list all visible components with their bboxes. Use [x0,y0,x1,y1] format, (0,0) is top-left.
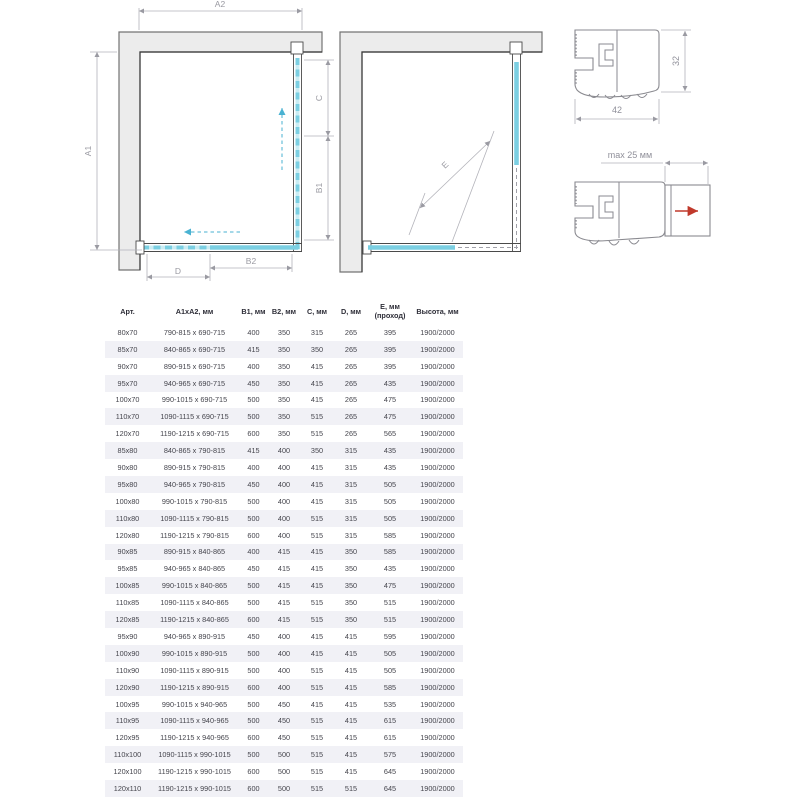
table-cell: 500 [239,662,268,679]
table-cell: 415 [268,560,300,577]
spec-table-head: Арт.A1xA2, ммB1, ммB2, ммC, ммD, ммE, мм… [105,299,463,324]
table-cell: 400 [239,459,268,476]
wall-profile-cap-top [291,42,303,54]
dimension-label-b1: B1 [314,183,324,194]
table-cell: 990-1015 x 840-865 [150,577,239,594]
table-cell: 95x90 [105,628,150,645]
table-cell: 315 [334,442,368,459]
table-cell: 90x85 [105,544,150,561]
table-row: 95x70940-965 x 690-715450350415265435190… [105,375,463,392]
table-cell: 400 [268,476,300,493]
table-cell: 400 [268,459,300,476]
table-cell: 395 [368,324,412,341]
table-cell: 100x80 [105,493,150,510]
table-cell: 1900/2000 [412,729,463,746]
table-cell: 1090-1115 x 940-965 [150,712,239,729]
table-cell: 1900/2000 [412,408,463,425]
table-cell: 1900/2000 [412,577,463,594]
table-cell: 100x70 [105,392,150,409]
dimension-label-42: 42 [612,105,622,115]
table-cell: 990-1015 x 790-815 [150,493,239,510]
column-header: D, мм [334,299,368,324]
table-cell: 940-965 x 840-865 [150,560,239,577]
table-cell: 1190-1215 x 990-1015 [150,763,239,780]
table-cell: 1900/2000 [412,662,463,679]
table-cell: 350 [268,425,300,442]
table-cell: 1900/2000 [412,560,463,577]
table-cell: 415 [334,679,368,696]
table-cell: 790-815 x 690-715 [150,324,239,341]
table-cell: 500 [239,577,268,594]
table-cell: 615 [368,729,412,746]
table-cell: 400 [239,324,268,341]
table-cell: 1190-1215 x 940-965 [150,729,239,746]
table-cell: 450 [268,696,300,713]
table-cell: 395 [368,341,412,358]
table-cell: 350 [334,577,368,594]
table-cell: 350 [268,324,300,341]
table-cell: 450 [268,729,300,746]
table-row: 90x80890-915 x 790-815400400415315435190… [105,459,463,476]
table-cell: 400 [268,628,300,645]
table-cell: 1900/2000 [412,493,463,510]
table-cell: 1900/2000 [412,696,463,713]
table-cell: 1900/2000 [412,425,463,442]
table-cell: 265 [334,341,368,358]
table-cell: 1190-1215 x 840-865 [150,611,239,628]
table-cell: 515 [300,594,334,611]
table-cell: 120x70 [105,425,150,442]
table-cell: 515 [300,679,334,696]
table-cell: 500 [239,712,268,729]
table-cell: 500 [268,746,300,763]
column-header: Арт. [105,299,150,324]
table-cell: 415 [300,544,334,561]
table-cell: 500 [239,392,268,409]
table-cell: 350 [268,392,300,409]
table-row: 120x1001190-1215 x 990-10156005005154156… [105,763,463,780]
table-cell: 400 [268,493,300,510]
table-cell: 1900/2000 [412,645,463,662]
table-cell: 350 [334,544,368,561]
dimension-label-32: 32 [671,56,681,66]
table-cell: 515 [300,408,334,425]
table-row: 90x85890-915 x 840-865400415415350585190… [105,544,463,561]
table-cell: 535 [368,696,412,713]
table-cell: 435 [368,459,412,476]
table-cell: 585 [368,527,412,544]
table-row: 100x90990-1015 x 890-9155004004154155051… [105,645,463,662]
table-cell: 515 [368,611,412,628]
table-cell: 1900/2000 [412,476,463,493]
spec-table-container: Арт.A1xA2, ммB1, ммB2, ммC, ммD, ммE, мм… [105,299,447,797]
table-cell: 1900/2000 [412,527,463,544]
table-cell: 1090-1115 x 690-715 [150,408,239,425]
table-cell: 265 [334,324,368,341]
extension-profile-section: max 25 мм [575,150,710,245]
table-cell: 475 [368,577,412,594]
table-cell: 990-1015 x 690-715 [150,392,239,409]
table-cell: 415 [334,729,368,746]
table-cell: 515 [300,763,334,780]
table-cell: 315 [334,527,368,544]
table-cell: 500 [239,408,268,425]
table-cell: 415 [300,645,334,662]
table-cell: 85x70 [105,341,150,358]
table-cell: 1900/2000 [412,594,463,611]
table-row: 110x701090-1115 x 690-715500350515265475… [105,408,463,425]
table-cell: 990-1015 x 940-965 [150,696,239,713]
table-cell: 80x70 [105,324,150,341]
table-cell: 1090-1115 x 890-915 [150,662,239,679]
table-row: 120x801190-1215 x 790-815600400515315585… [105,527,463,544]
table-cell: 565 [368,425,412,442]
table-cell: 1900/2000 [412,392,463,409]
table-row: 110x951090-1115 x 940-965500450515415615… [105,712,463,729]
column-header: E, мм (проход) [368,299,412,324]
table-cell: 110x80 [105,510,150,527]
table-cell: 315 [300,324,334,341]
table-row: 100x95990-1015 x 940-9655004504154155351… [105,696,463,713]
table-cell: 600 [239,527,268,544]
table-cell: 515 [300,527,334,544]
table-row: 85x70840-865 x 690-715415350350265395190… [105,341,463,358]
table-cell: 400 [268,662,300,679]
table-cell: 350 [334,611,368,628]
table-cell: 1190-1215 x 790-815 [150,527,239,544]
table-cell: 315 [334,493,368,510]
table-cell: 1900/2000 [412,628,463,645]
table-row: 100x85990-1015 x 840-8655004154153504751… [105,577,463,594]
table-cell: 1900/2000 [412,375,463,392]
table-cell: 110x95 [105,712,150,729]
table-cell: 350 [268,375,300,392]
table-cell: 415 [334,696,368,713]
table-cell: 415 [300,577,334,594]
dim-line-e [420,141,490,208]
wall-profile-cap-top [510,42,522,54]
wall-l-shape [119,32,322,270]
table-cell: 500 [239,696,268,713]
table-cell: 600 [239,611,268,628]
table-cell: 1900/2000 [412,358,463,375]
column-header: C, мм [300,299,334,324]
table-cell: 265 [334,375,368,392]
table-cell: 1900/2000 [412,712,463,729]
table-cell: 940-965 x 790-815 [150,476,239,493]
table-row: 120x701190-1215 x 690-715600350515265565… [105,425,463,442]
table-cell: 100x95 [105,696,150,713]
table-cell: 475 [368,408,412,425]
table-cell: 100x85 [105,577,150,594]
table-cell: 415 [334,662,368,679]
table-cell: 315 [334,510,368,527]
table-cell: 505 [368,510,412,527]
table-cell: 840-865 x 690-715 [150,341,239,358]
table-cell: 415 [300,560,334,577]
table-cell: 515 [300,510,334,527]
table-row: 120x901190-1215 x 890-915600400515415585… [105,679,463,696]
table-cell: 400 [239,358,268,375]
table-cell: 515 [334,780,368,797]
table-cell: 890-915 x 690-715 [150,358,239,375]
table-cell: 415 [300,459,334,476]
table-cell: 350 [334,594,368,611]
table-cell: 600 [239,763,268,780]
table-cell: 600 [239,425,268,442]
table-cell: 415 [268,577,300,594]
table-cell: 350 [268,358,300,375]
table-cell: 350 [268,341,300,358]
table-cell: 475 [368,392,412,409]
table-cell: 1190-1215 x 890-915 [150,679,239,696]
table-cell: 415 [300,476,334,493]
table-cell: 595 [368,628,412,645]
table-row: 100x70990-1015 x 690-7155003504152654751… [105,392,463,409]
wall-inner-edge [140,52,322,270]
dimension-label-c: C [314,95,324,101]
table-cell: 120x95 [105,729,150,746]
table-cell: 110x100 [105,746,150,763]
table-cell: 110x90 [105,662,150,679]
table-cell: 395 [368,358,412,375]
table-cell: 515 [300,662,334,679]
table-row: 90x70890-915 x 690-715400350415265395190… [105,358,463,375]
table-cell: 450 [239,476,268,493]
table-cell: 1900/2000 [412,442,463,459]
table-cell: 265 [334,392,368,409]
dimension-label-a1: A1 [83,146,93,157]
table-row: 95x80940-965 x 790-815450400415315505190… [105,476,463,493]
table-cell: 1090-1115 x 840-865 [150,594,239,611]
spec-table-body: 80x70790-815 x 690-715400350315265395190… [105,324,463,797]
table-cell: 400 [268,679,300,696]
table-cell: 615 [368,712,412,729]
dimension-label-max25: max 25 мм [608,150,652,160]
table-cell: 415 [239,341,268,358]
table-cell: 1190-1215 x 990-1015 [150,780,239,797]
table-cell: 350 [268,408,300,425]
table-cell: 990-1015 x 890-915 [150,645,239,662]
table-cell: 500 [239,594,268,611]
table-cell: 1900/2000 [412,459,463,476]
table-cell: 110x70 [105,408,150,425]
table-row: 110x801090-1115 x 790-815500400515315505… [105,510,463,527]
table-cell: 120x90 [105,679,150,696]
table-cell: 1900/2000 [412,746,463,763]
table-cell: 435 [368,375,412,392]
table-cell: 515 [300,729,334,746]
table-cell: 1090-1115 x 790-815 [150,510,239,527]
table-cell: 500 [239,645,268,662]
table-row: 120x1101190-1215 x 990-10156005005155156… [105,780,463,797]
table-cell: 95x80 [105,476,150,493]
table-cell: 415 [239,442,268,459]
table-row: 100x80990-1015 x 790-8155004004153155051… [105,493,463,510]
table-cell: 415 [268,594,300,611]
table-row: 120x951190-1215 x 940-965600450515415615… [105,729,463,746]
table-cell: 1900/2000 [412,679,463,696]
table-row: 85x80840-865 x 790-815415400350315435190… [105,442,463,459]
wall-profile-cap-left [136,241,144,254]
table-cell: 600 [239,679,268,696]
table-cell: 415 [300,628,334,645]
table-cell: 100x90 [105,645,150,662]
table-cell: 400 [268,442,300,459]
table-cell: 500 [239,510,268,527]
table-cell: 505 [368,476,412,493]
table-cell: 415 [300,358,334,375]
table-cell: 435 [368,560,412,577]
table-cell: 415 [334,712,368,729]
table-row: 110x851090-1115 x 840-865500415515350515… [105,594,463,611]
table-cell: 600 [239,780,268,797]
table-cell: 1190-1215 x 690-715 [150,425,239,442]
table-cell: 515 [300,780,334,797]
table-cell: 265 [334,408,368,425]
table-cell: 1900/2000 [412,611,463,628]
dimension-label-b2: B2 [246,256,257,266]
table-cell: 400 [268,645,300,662]
table-cell: 1900/2000 [412,324,463,341]
table-cell: 415 [334,746,368,763]
table-cell: 515 [300,746,334,763]
table-cell: 415 [300,493,334,510]
table-cell: 415 [300,375,334,392]
table-cell: 1900/2000 [412,544,463,561]
table-cell: 120x100 [105,763,150,780]
table-cell: 95x85 [105,560,150,577]
plan-view-open: E [330,0,565,295]
table-cell: 505 [368,645,412,662]
table-cell: 515 [300,425,334,442]
header-row: Арт.A1xA2, ммB1, ммB2, ммC, ммD, ммE, мм… [105,299,463,324]
table-cell: 450 [239,560,268,577]
table-cell: 120x110 [105,780,150,797]
dimension-label-a2: A2 [215,0,226,9]
column-header: A1xA2, мм [150,299,239,324]
table-cell: 415 [300,392,334,409]
table-cell: 515 [300,611,334,628]
table-cell: 645 [368,763,412,780]
table-cell: 435 [368,442,412,459]
table-cell: 515 [368,594,412,611]
column-header: B1, мм [239,299,268,324]
table-cell: 1900/2000 [412,763,463,780]
table-row: 95x85940-965 x 840-865450415415350435190… [105,560,463,577]
table-cell: 95x70 [105,375,150,392]
table-cell: 315 [334,459,368,476]
table-cell: 940-965 x 690-715 [150,375,239,392]
table-cell: 500 [239,746,268,763]
table-cell: 415 [334,645,368,662]
table-cell: 415 [334,628,368,645]
dimension-label-d: D [175,266,181,276]
table-cell: 85x80 [105,442,150,459]
table-cell: 1900/2000 [412,510,463,527]
table-cell: 1900/2000 [412,780,463,797]
spec-sheet-page: A2 A1 C B1 B2 D E [0,0,800,800]
table-cell: 265 [334,358,368,375]
table-cell: 585 [368,544,412,561]
column-header: B2, мм [268,299,300,324]
column-header: Высота, мм [412,299,463,324]
wall-l-shape [340,32,542,272]
table-cell: 505 [368,493,412,510]
table-cell: 90x70 [105,358,150,375]
wall-profile-section: 32 42 [575,30,691,124]
table-cell: 515 [300,712,334,729]
table-cell: 120x85 [105,611,150,628]
table-cell: 505 [368,662,412,679]
table-cell: 415 [334,763,368,780]
table-cell: 400 [268,527,300,544]
table-cell: 1090-1115 x 990-1015 [150,746,239,763]
table-cell: 315 [334,476,368,493]
table-row: 120x851190-1215 x 840-865600415515350515… [105,611,463,628]
table-cell: 840-865 x 790-815 [150,442,239,459]
table-cell: 415 [268,611,300,628]
table-cell: 450 [239,628,268,645]
table-cell: 645 [368,780,412,797]
table-cell: 120x80 [105,527,150,544]
profile-sections: 32 42 max 25 мм [555,0,800,260]
spec-table: Арт.A1xA2, ммB1, ммB2, ммC, ммD, ммE, мм… [105,299,463,797]
table-cell: 1900/2000 [412,341,463,358]
table-row: 95x90940-965 x 890-915450400415415595190… [105,628,463,645]
table-cell: 450 [239,375,268,392]
plan-view-closed: A2 A1 C B1 B2 D [80,0,350,295]
table-cell: 350 [300,442,334,459]
table-row: 110x1001090-1115 x 990-10155005005154155… [105,746,463,763]
table-cell: 415 [300,696,334,713]
table-cell: 415 [268,544,300,561]
table-cell: 500 [239,493,268,510]
table-cell: 90x80 [105,459,150,476]
table-cell: 350 [300,341,334,358]
table-cell: 600 [239,729,268,746]
table-cell: 500 [268,763,300,780]
table-cell: 350 [334,560,368,577]
table-row: 80x70790-815 x 690-715400350315265395190… [105,324,463,341]
dimension-label-e: E [439,159,450,170]
table-cell: 890-915 x 790-815 [150,459,239,476]
table-cell: 890-915 x 840-865 [150,544,239,561]
table-cell: 400 [268,510,300,527]
table-cell: 575 [368,746,412,763]
table-row: 110x901090-1115 x 890-915500400515415505… [105,662,463,679]
table-cell: 500 [268,780,300,797]
table-cell: 400 [239,544,268,561]
table-cell: 450 [268,712,300,729]
table-cell: 940-965 x 890-915 [150,628,239,645]
table-cell: 265 [334,425,368,442]
table-cell: 110x85 [105,594,150,611]
table-cell: 585 [368,679,412,696]
